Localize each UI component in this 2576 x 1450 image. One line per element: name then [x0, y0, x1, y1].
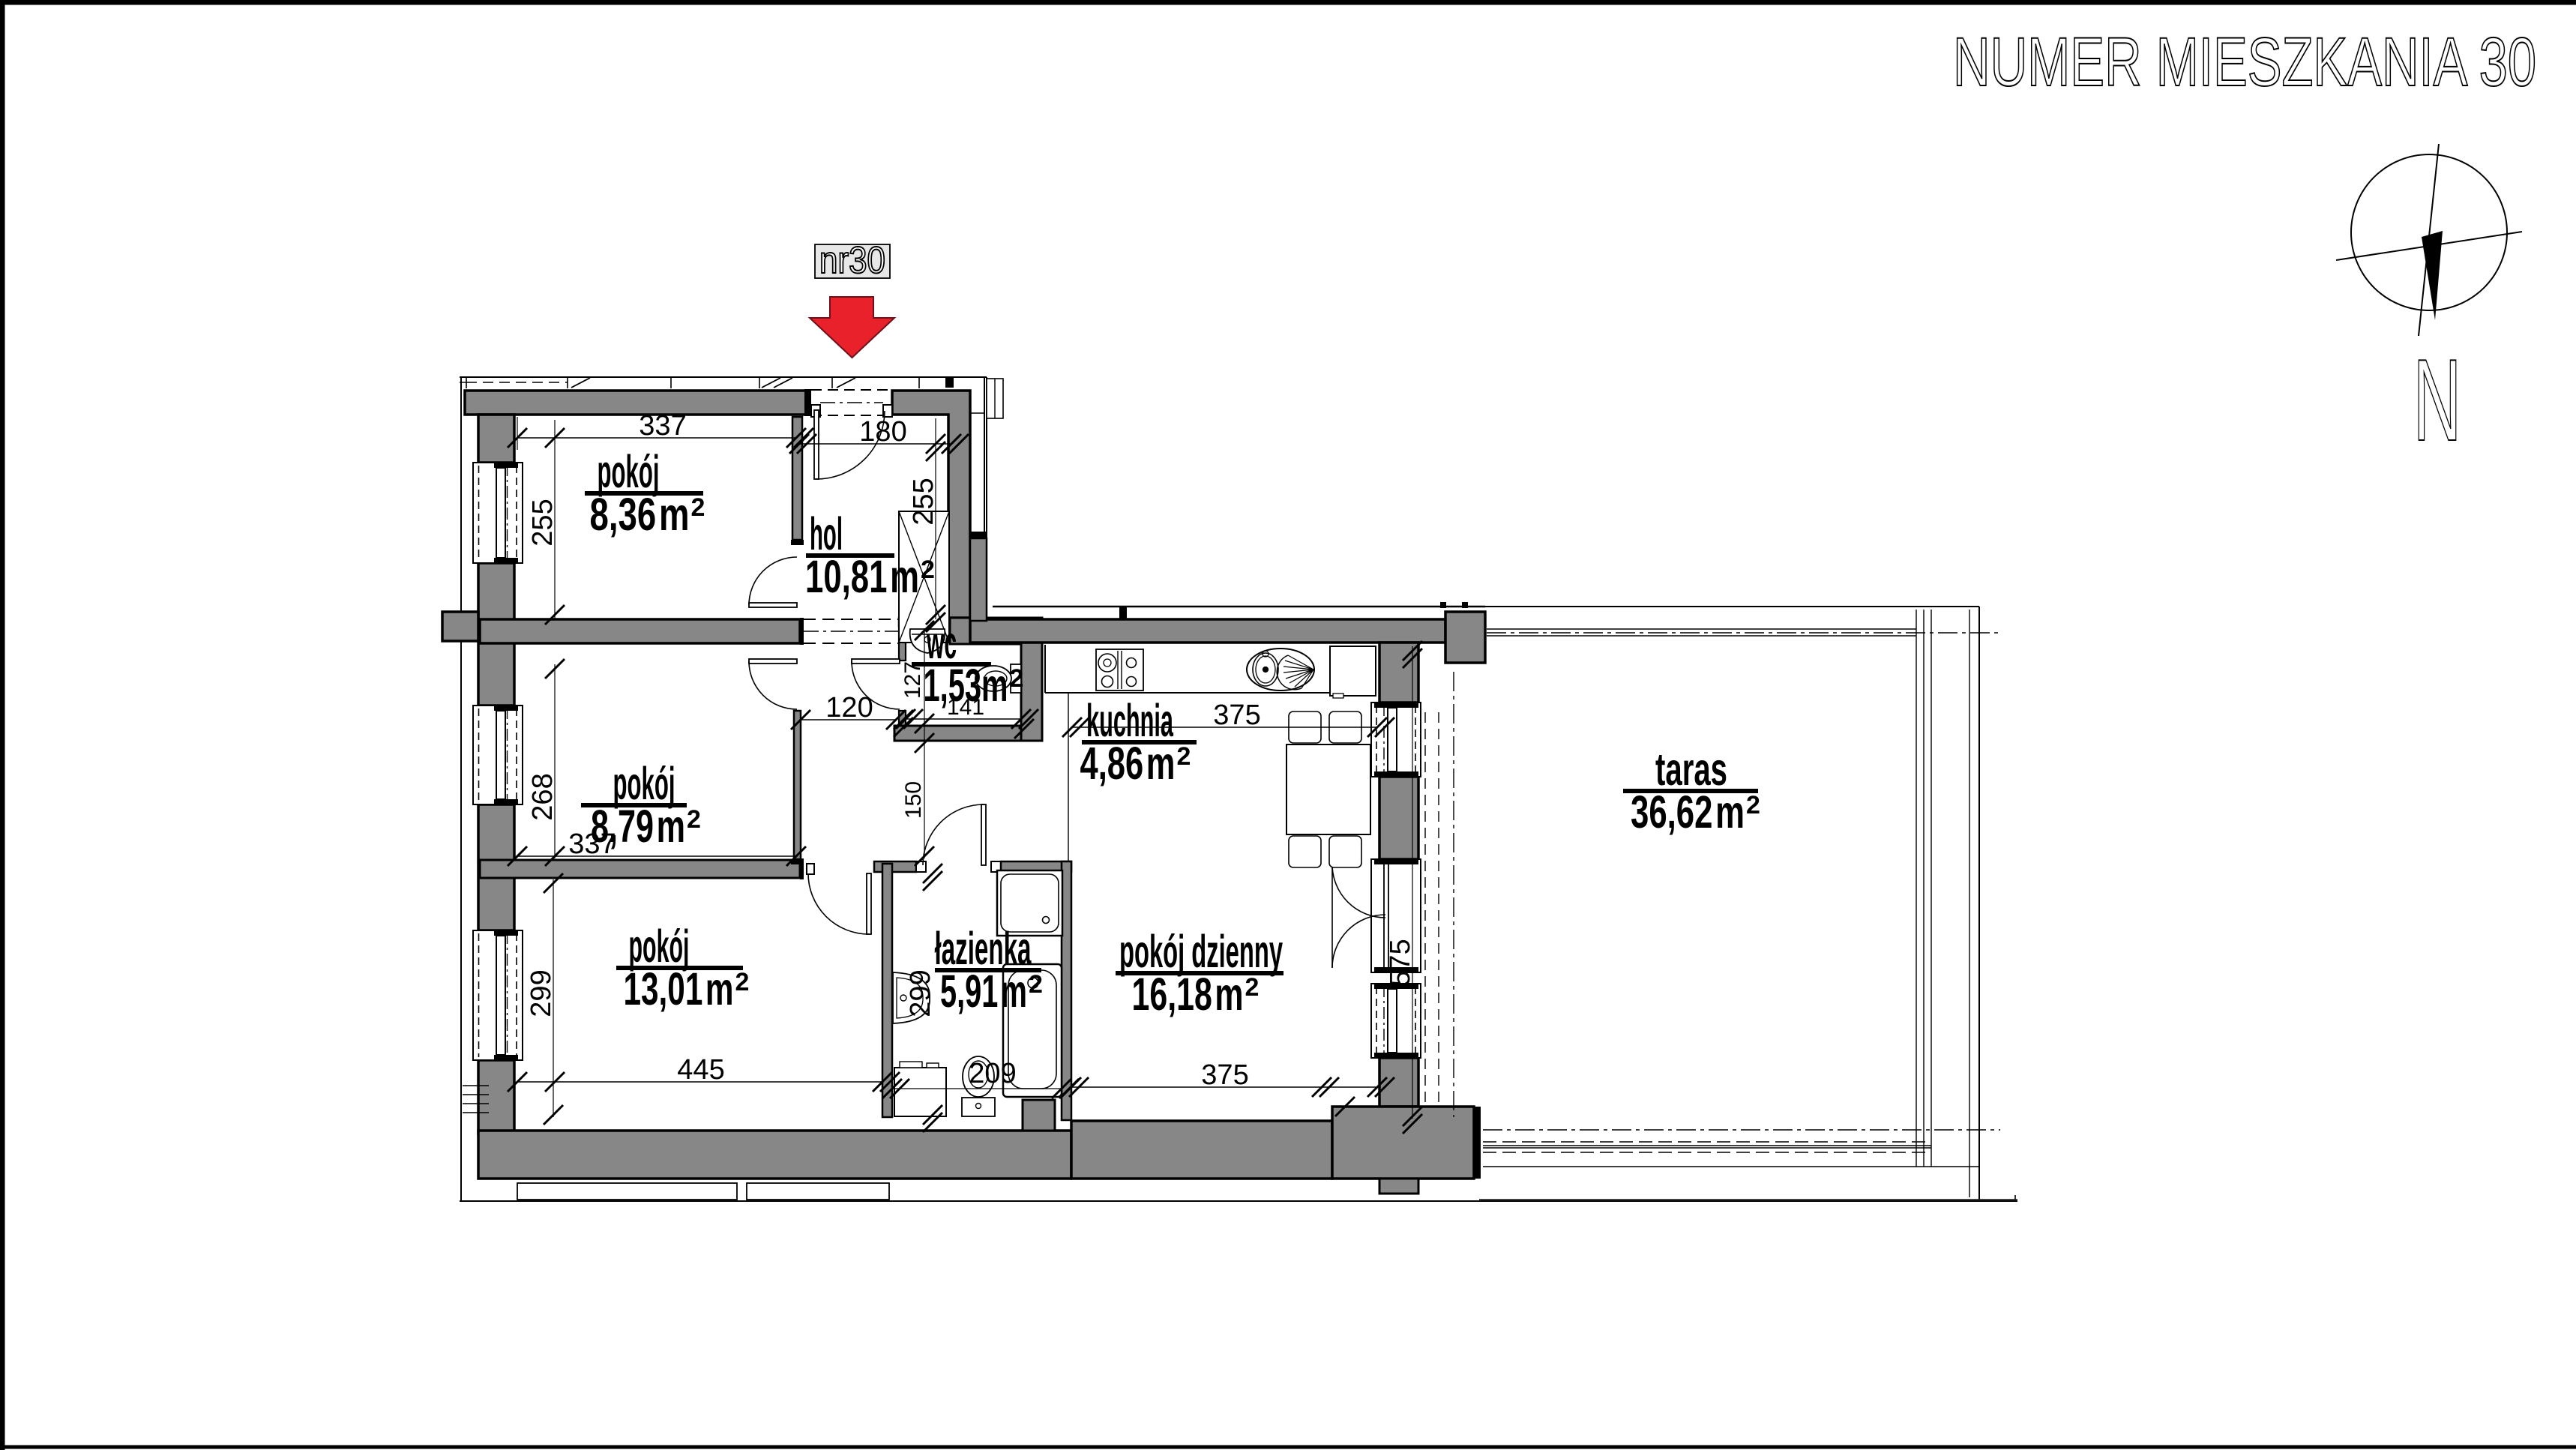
- svg-text:1,53m: 1,53m: [924, 660, 1008, 711]
- svg-text:299: 299: [526, 969, 557, 1017]
- svg-text:2: 2: [1029, 970, 1043, 999]
- svg-text:8,36 m: 8,36 m: [590, 489, 690, 540]
- svg-text:575: 575: [1385, 939, 1416, 986]
- svg-text:36,62 m: 36,62 m: [1631, 786, 1745, 837]
- svg-text:10,81 m: 10,81 m: [805, 551, 919, 602]
- svg-text:120: 120: [825, 692, 873, 724]
- svg-text:375: 375: [1213, 700, 1260, 731]
- svg-text:5,91 m: 5,91 m: [940, 966, 1027, 1017]
- svg-text:255: 255: [527, 499, 559, 546]
- svg-text:2: 2: [691, 493, 705, 522]
- svg-text:2: 2: [1010, 664, 1024, 693]
- svg-text:2: 2: [1245, 973, 1260, 1002]
- svg-text:NUMER MIESZKANIA 30: NUMER MIESZKANIA 30: [1953, 24, 2536, 100]
- svg-text:299: 299: [905, 969, 936, 1017]
- svg-text:337: 337: [639, 410, 686, 442]
- svg-text:2: 2: [921, 556, 935, 584]
- svg-text:375: 375: [1201, 1059, 1248, 1091]
- svg-text:445: 445: [677, 1054, 724, 1086]
- svg-text:180: 180: [859, 416, 906, 448]
- svg-text:255: 255: [908, 478, 939, 525]
- svg-text:8,79 m: 8,79 m: [591, 801, 685, 852]
- svg-text:2: 2: [687, 805, 701, 834]
- svg-text:4,86 m: 4,86 m: [1080, 738, 1176, 789]
- svg-text:209: 209: [969, 1058, 1016, 1089]
- svg-text:N: N: [2413, 335, 2461, 465]
- svg-text:2: 2: [1746, 791, 1760, 819]
- svg-text:2: 2: [735, 968, 750, 996]
- svg-text:268: 268: [527, 773, 559, 820]
- svg-text:2: 2: [1177, 742, 1191, 771]
- svg-text:16,18 m: 16,18 m: [1132, 969, 1244, 1020]
- svg-text:127: 127: [900, 661, 925, 699]
- svg-text:150: 150: [901, 781, 926, 819]
- svg-text:nr30: nr30: [819, 239, 885, 281]
- svg-text:13,01 m: 13,01 m: [624, 963, 734, 1014]
